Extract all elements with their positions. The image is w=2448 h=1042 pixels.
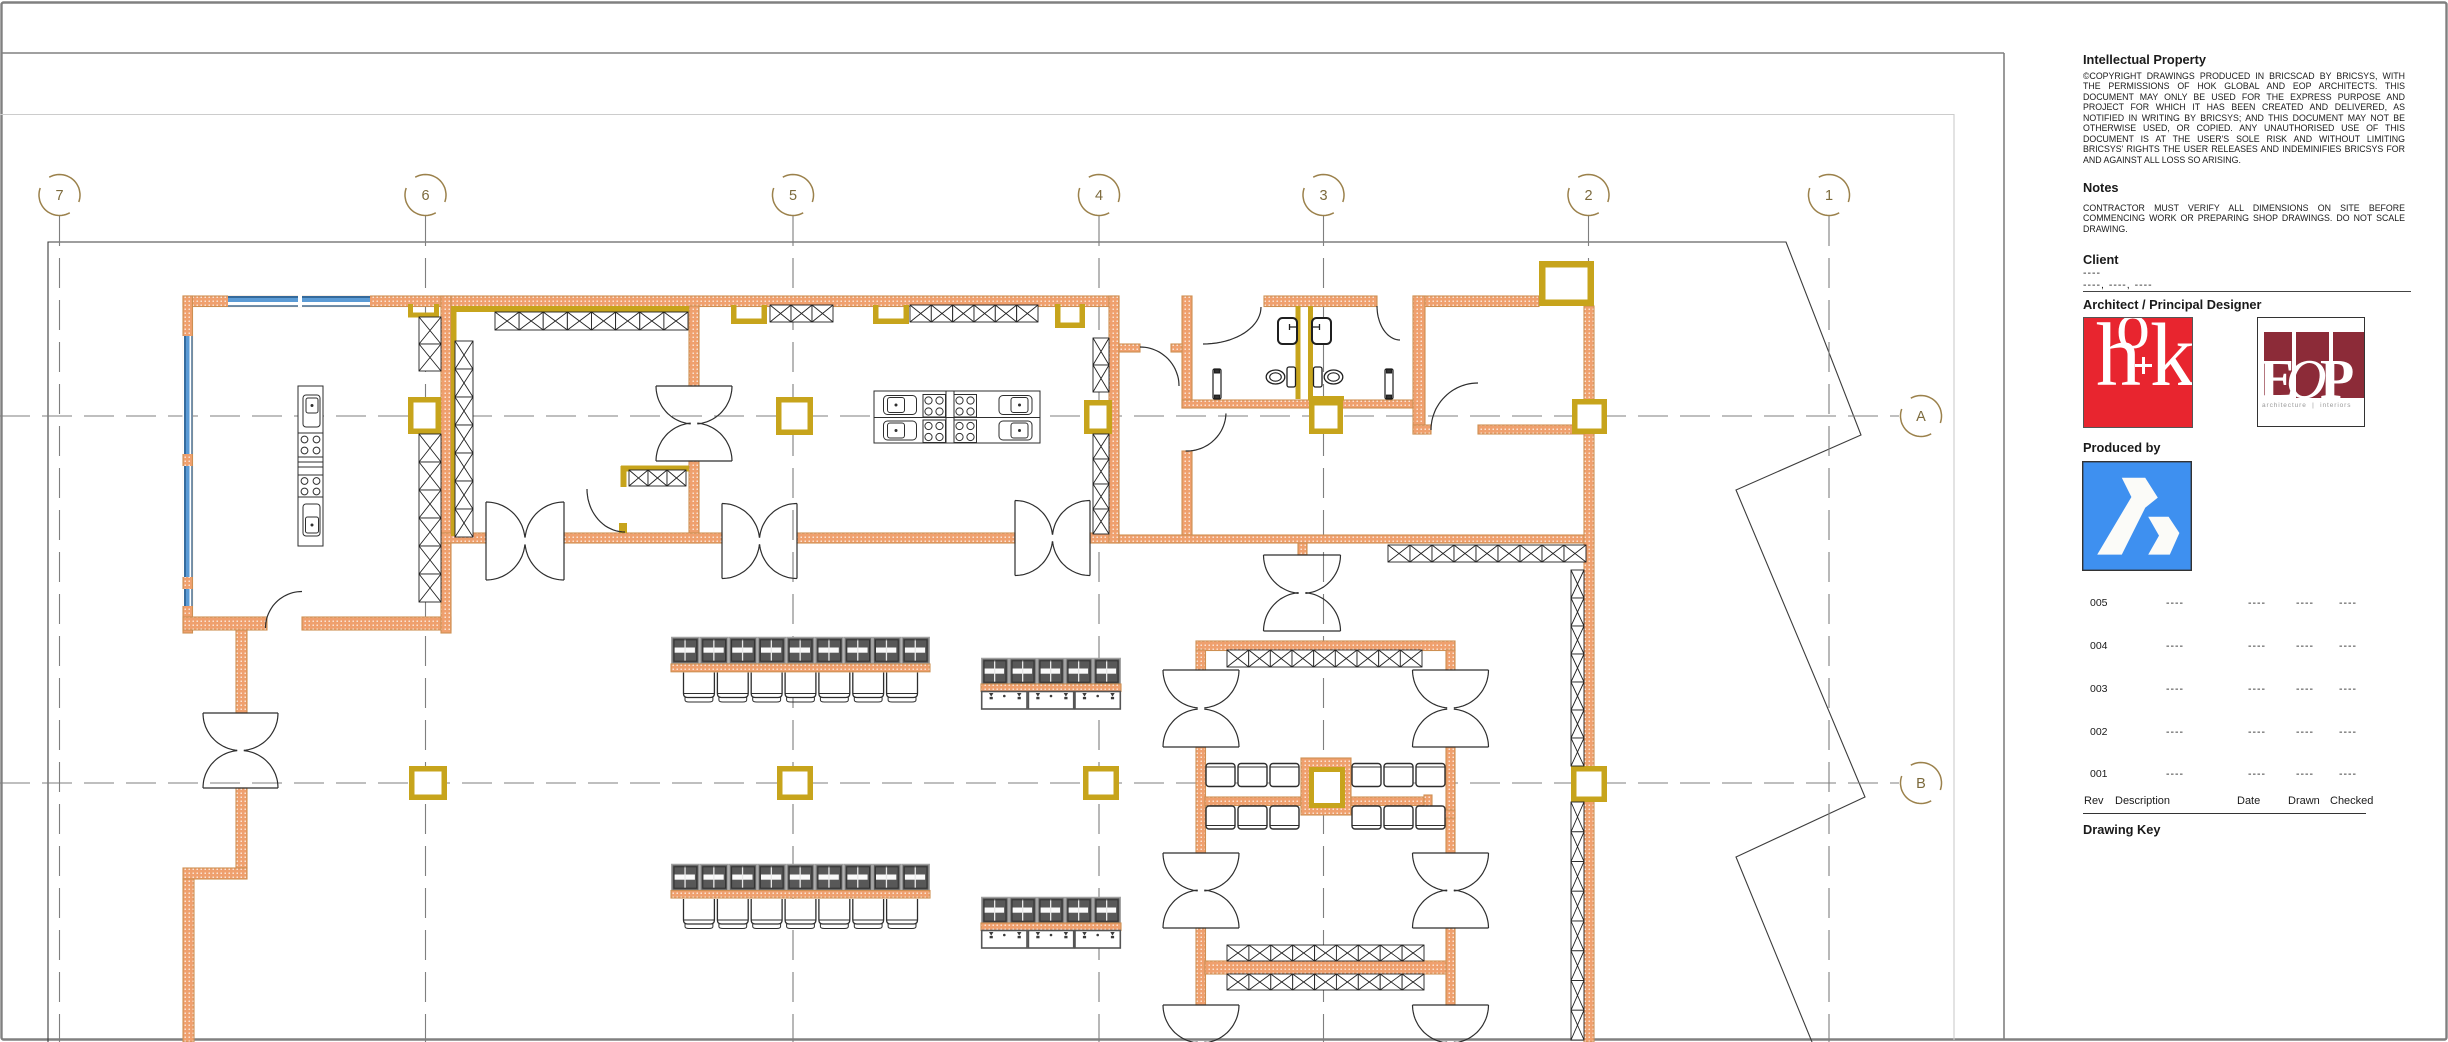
svg-text:A: A [1916, 409, 1926, 425]
svg-text:6: 6 [421, 188, 429, 204]
svg-text:2: 2 [1584, 188, 1592, 204]
svg-text:1: 1 [1825, 188, 1833, 204]
svg-text:B: B [1916, 776, 1926, 792]
svg-text:7: 7 [55, 188, 63, 204]
svg-text:5: 5 [789, 188, 797, 204]
svg-text:4: 4 [1095, 188, 1103, 204]
svg-text:3: 3 [1319, 188, 1327, 204]
